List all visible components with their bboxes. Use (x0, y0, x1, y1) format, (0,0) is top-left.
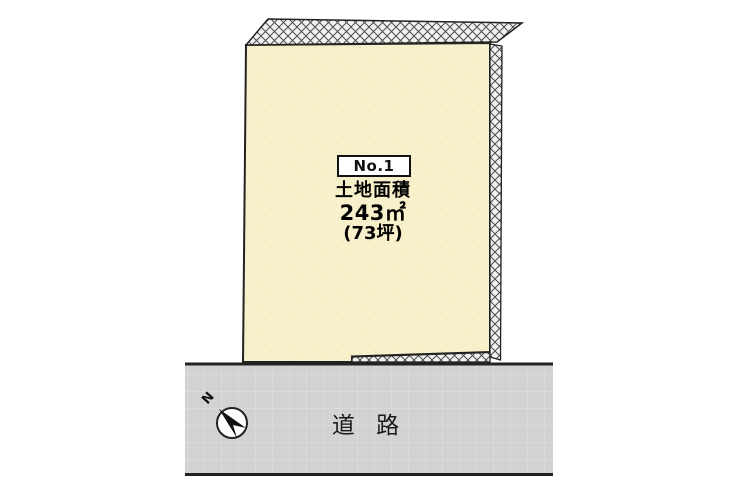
land-area-tsubo: (73坪) (293, 224, 453, 244)
plot-number-text: No.1 (354, 157, 395, 175)
site-plan-diagram: No.1 土地面積 243㎡ (73坪) 道 路 N (0, 0, 735, 500)
plot-number-label: No.1 (337, 155, 411, 177)
land-area-sqm: 243㎡ (293, 202, 453, 224)
land-area-block: 土地面積 243㎡ (73坪) (293, 180, 453, 244)
right-boundary-hatch (490, 44, 502, 360)
road-label: 道 路 (185, 406, 553, 440)
top-boundary-hatch (246, 19, 522, 45)
land-area-title: 土地面積 (293, 180, 453, 202)
